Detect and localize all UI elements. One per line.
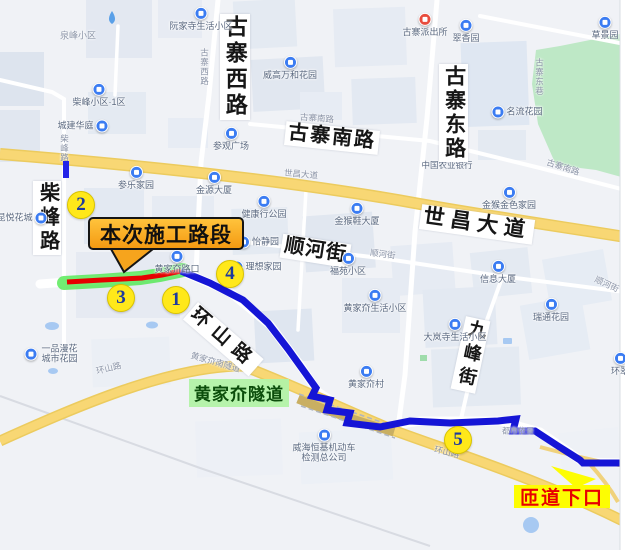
blue-tick-marker xyxy=(63,161,69,178)
poi[interactable]: 黄家夼生活小区 xyxy=(343,289,406,313)
poi-label: 金猴金色家园 xyxy=(482,200,536,210)
poi-icon xyxy=(170,250,183,263)
poi-label: 黄家夼生活小区 xyxy=(343,303,406,313)
poi-label: 城建华庭 xyxy=(57,121,93,131)
poi-label: 大岚寺生活小区 xyxy=(423,332,486,342)
poi-label: 福苑小区 xyxy=(330,266,366,276)
poi-label: 草景园 xyxy=(591,30,618,40)
poi-label: 柴峰小区·1区 xyxy=(72,97,125,107)
poi[interactable]: 瑞通花园 xyxy=(533,298,569,322)
poi-label: 威海恒基机动车检测总公司 xyxy=(290,443,358,464)
poi-icon xyxy=(35,212,48,225)
poi[interactable]: 柴峰小区·1区 xyxy=(72,83,125,107)
poi-label: 昆悦花城 xyxy=(0,213,33,223)
poi-icon xyxy=(257,195,270,208)
poi-icon xyxy=(613,352,625,365)
poi-icon xyxy=(92,83,105,96)
poi[interactable]: 草景园 xyxy=(591,16,618,40)
poi-label: 怡静园 xyxy=(252,237,279,247)
poi-label: 参观广场 xyxy=(213,141,249,151)
poi-label: 参乐家园 xyxy=(118,180,154,190)
poi[interactable]: 健康行公园 xyxy=(241,195,286,219)
poi[interactable]: 参观广场 xyxy=(213,127,249,151)
map-edge-strip xyxy=(620,0,625,550)
poi-label: 环翠 xyxy=(611,366,625,376)
area-label: 泉峰小区 xyxy=(60,29,96,42)
poi-icon xyxy=(283,56,296,69)
poi-icon xyxy=(448,318,461,331)
route-marker-4: 4 xyxy=(216,260,244,288)
poi-icon xyxy=(491,106,504,119)
poi-label: 古寨派出所 xyxy=(402,27,447,37)
poi-label: 瑞通花园 xyxy=(533,312,569,322)
poi-label: 一品漫花城市花园 xyxy=(40,344,80,365)
poi[interactable]: 威海恒基机动车检测总公司 xyxy=(290,429,358,464)
poi[interactable]: 黄家夼路口 xyxy=(154,250,199,274)
poi-icon xyxy=(350,202,363,215)
poi-label: 健康行公园 xyxy=(241,209,286,219)
poi[interactable]: 信息大厦 xyxy=(480,260,516,284)
poi-icon xyxy=(359,365,372,378)
poi-icon xyxy=(341,252,354,265)
poi[interactable]: 福苑小区 xyxy=(330,252,366,276)
poi[interactable]: 金源大厦 xyxy=(196,171,232,195)
poi-label: 黄家夼路口 xyxy=(154,264,199,274)
poi-label: 阮家寺生活小区 xyxy=(169,21,232,31)
tunnel-label: 黄家夼隧道 xyxy=(189,379,289,407)
poi-label: 名流花园 xyxy=(506,107,542,117)
poi[interactable]: 一品漫花城市花园 xyxy=(25,344,80,365)
poi-icon xyxy=(224,127,237,140)
ramp-exit-callout: 匝道下口 xyxy=(514,485,610,508)
poi[interactable]: 昆悦花城 xyxy=(0,212,48,225)
poi[interactable]: 城建华庭 xyxy=(57,120,108,133)
poi[interactable]: 翠香园 xyxy=(452,19,479,43)
poi-police[interactable]: 古寨派出所 xyxy=(402,13,447,37)
poi[interactable]: 威高万和花园 xyxy=(263,56,317,80)
poi-icon xyxy=(25,348,38,361)
poi-icon xyxy=(96,120,109,133)
police-station-icon xyxy=(418,13,431,26)
poi[interactable]: 金猴金色家园 xyxy=(482,186,536,210)
street-tag: 柴峰路 xyxy=(60,134,69,163)
street-tag: 古寨南路 xyxy=(300,113,335,124)
poi-label: 理想家园 xyxy=(245,262,281,272)
poi-icon xyxy=(129,166,142,179)
poi[interactable]: 大岚寺生活小区 xyxy=(423,318,486,342)
map-canvas[interactable]: 柴峰路 古寨西路 古寨南路 世昌大道 世昌大道 顺河街 顺河街 古寨南路 环山路… xyxy=(0,0,625,550)
poi[interactable]: 环翠 xyxy=(611,352,625,376)
poi-icon xyxy=(491,260,504,273)
poi[interactable]: 名流花园 xyxy=(491,106,542,119)
poi-label: 威高万和花园 xyxy=(263,70,317,80)
street-tag: 古寨东巷 xyxy=(535,58,544,96)
poi[interactable]: 参乐家园 xyxy=(118,166,154,190)
poi[interactable]: 阮家寺生活小区 xyxy=(169,7,232,31)
route-marker-3: 3 xyxy=(107,284,135,312)
road-label-guzhai-east: 古寨东路 xyxy=(439,64,468,162)
poi-label: 信息大厦 xyxy=(480,274,516,284)
poi-icon xyxy=(368,289,381,302)
poi[interactable]: 黄家夼村 xyxy=(348,365,384,389)
street-tag: 古寨西路 xyxy=(200,48,209,86)
route-marker-1: 1 xyxy=(162,286,190,314)
poi-icon xyxy=(207,171,220,184)
route-marker-5: 5 xyxy=(444,426,472,454)
poi-label: 黄家夼村 xyxy=(348,379,384,389)
route-marker-2: 2 xyxy=(67,191,95,219)
construction-section-callout: 本次施工路段 xyxy=(88,217,244,250)
poi[interactable]: 金猴鞋大厦 xyxy=(334,202,379,226)
poi-icon xyxy=(598,16,611,29)
poi-label: 金源大厦 xyxy=(196,185,232,195)
poi-icon xyxy=(544,298,557,311)
poi-icon xyxy=(194,7,207,20)
area-label: 都市依景 xyxy=(502,426,534,437)
poi-icon xyxy=(459,19,472,32)
poi-label: 翠香园 xyxy=(452,33,479,43)
poi-label: 金猴鞋大厦 xyxy=(334,216,379,226)
poi-icon xyxy=(502,186,515,199)
poi-icon xyxy=(318,429,331,442)
